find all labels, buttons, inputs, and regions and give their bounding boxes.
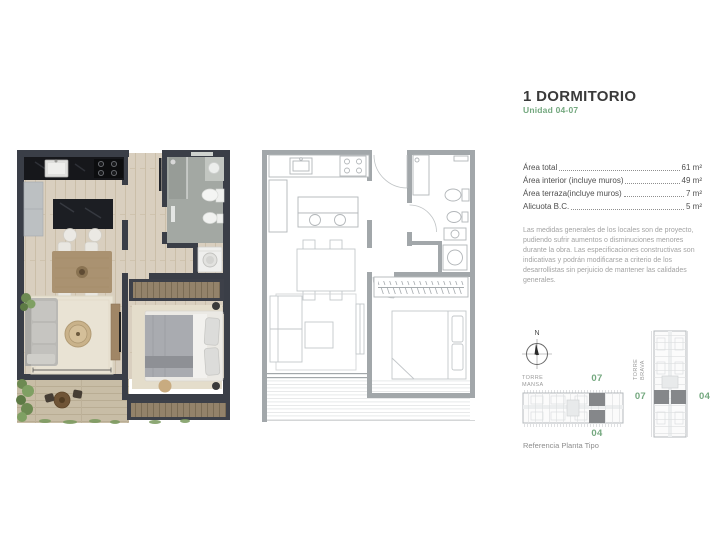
washbasin bbox=[209, 163, 220, 174]
page-title: 1 DORMITORIO bbox=[523, 88, 636, 105]
area-value: 61 m² bbox=[682, 162, 702, 173]
coffee-table bbox=[65, 321, 91, 347]
side-table bbox=[212, 382, 220, 390]
line-washer bbox=[443, 245, 467, 270]
stool bbox=[64, 229, 77, 242]
area-value: 7 m² bbox=[686, 188, 702, 199]
dotted-leader bbox=[571, 209, 684, 210]
render-planter-deck bbox=[127, 400, 230, 420]
torre-mansa-unit-07: 07 bbox=[588, 373, 606, 384]
line-floorplan bbox=[260, 146, 478, 426]
torre-brava-unit-07: 07 bbox=[628, 391, 646, 402]
rendered-floorplan bbox=[15, 148, 237, 428]
area-label: Área interior (incluye muros) bbox=[523, 175, 623, 186]
area-label: Área total bbox=[523, 162, 557, 173]
tv-console bbox=[111, 304, 121, 360]
compass: N bbox=[521, 330, 553, 370]
render-kitchen bbox=[24, 157, 124, 242]
toilet bbox=[202, 189, 224, 202]
shower-head bbox=[171, 160, 176, 165]
torre-brava-diagram bbox=[648, 328, 692, 440]
compass-icon bbox=[521, 338, 553, 370]
torre-mansa-diagram bbox=[521, 388, 625, 430]
bidet bbox=[203, 213, 223, 224]
highlighted-unit-04 bbox=[589, 410, 605, 423]
side-table bbox=[212, 302, 220, 310]
render-washer bbox=[198, 247, 222, 272]
torre-mansa-unit-04: 04 bbox=[588, 428, 606, 439]
torre-brava-label: TORRE BRAVA bbox=[633, 325, 645, 380]
highlighted-unit-07 bbox=[589, 393, 605, 406]
torre-mansa-label: TORRE MANSA bbox=[522, 375, 544, 388]
highlighted-unit-04 bbox=[671, 390, 686, 404]
area-row: Alicuota B.C. 5 m² bbox=[523, 199, 702, 212]
legal-disclaimer: Las medidas generales de los locales son… bbox=[523, 226, 701, 286]
dotted-leader bbox=[625, 183, 679, 184]
stool bbox=[89, 229, 102, 242]
north-label: N bbox=[521, 330, 553, 337]
area-row: Área total 61 m² bbox=[523, 160, 702, 173]
highlighted-unit-07 bbox=[654, 390, 669, 404]
area-label: Alicuota B.C. bbox=[523, 201, 569, 212]
area-row: Área terraza(incluye muros) 7 m² bbox=[523, 186, 702, 199]
render-living bbox=[20, 293, 121, 374]
brochure-page: 1 DORMITORIO Unidad 04-07 Área total 61 … bbox=[0, 0, 720, 540]
render-bedroom bbox=[129, 279, 224, 393]
pouf bbox=[159, 380, 172, 393]
area-value: 49 m² bbox=[682, 175, 702, 186]
bed bbox=[145, 311, 224, 381]
reference-caption: Referencia Planta Tipo bbox=[523, 441, 599, 450]
area-row: Área interior (incluye muros) 49 m² bbox=[523, 173, 702, 186]
area-label: Área terraza(incluye muros) bbox=[523, 188, 622, 199]
area-table: Área total 61 m² Área interior (incluye … bbox=[523, 160, 702, 212]
unit-subtitle: Unidad 04-07 bbox=[523, 105, 578, 115]
area-value: 5 m² bbox=[686, 201, 702, 212]
dotted-leader bbox=[559, 170, 679, 171]
dotted-leader bbox=[624, 196, 684, 197]
entrance-door-leaf bbox=[159, 158, 162, 191]
line-dining bbox=[297, 240, 355, 300]
torre-brava-unit-04: 04 bbox=[699, 391, 717, 402]
